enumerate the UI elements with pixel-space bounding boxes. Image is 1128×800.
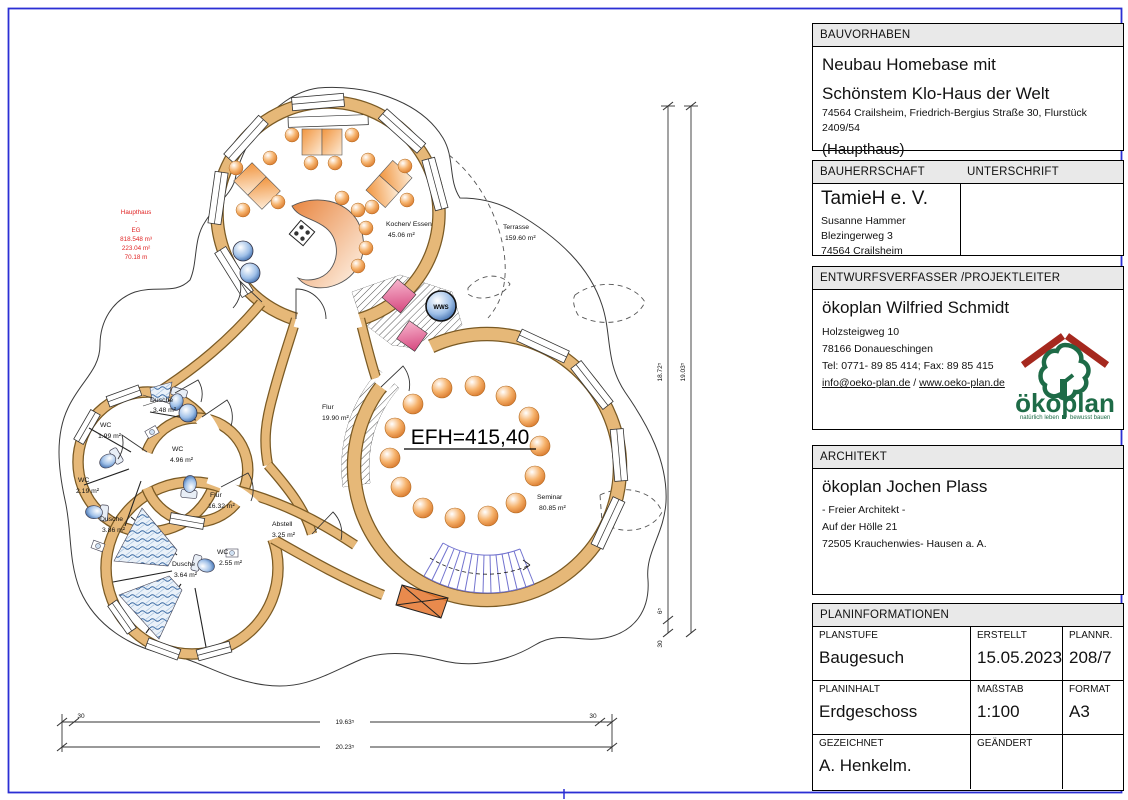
room-area: 3.64 m² — [174, 572, 198, 579]
architekt-header: ARCHITEKT — [813, 446, 1123, 469]
room-area: 45.06 m² — [388, 232, 416, 239]
room-area: 80.85 m² — [539, 505, 567, 512]
drawing-sheet: WWS — [0, 0, 1128, 800]
room-area: 4.96 m² — [170, 457, 194, 464]
dim-label-offset-left: 30 — [77, 713, 85, 720]
project-address: 74564 Crailsheim, Friedrich-Bergius Stra… — [822, 106, 1114, 136]
room-label: WC — [78, 477, 89, 484]
planinfo-cell-format: FORMAT A3 — [1063, 681, 1123, 735]
basin-icon — [240, 263, 260, 283]
oekoplan-logo-icon: ökoplan natürlich leben bewusst bauen — [1013, 322, 1117, 424]
designer-email-link[interactable]: info@oeko-plan.de — [822, 377, 910, 389]
room-label: Flur — [210, 492, 222, 499]
annotation-line: 223.04 m² — [122, 245, 150, 252]
planinfo-cell-gezeichnet: GEZEICHNET A. Henkelm. — [813, 735, 971, 789]
planinfo-grid: PLANSTUFE Baugesuch ERSTELLT 15.05.2023 … — [813, 627, 1123, 789]
dining-table — [302, 129, 342, 155]
room-label: Dusche — [150, 397, 173, 404]
stove-icon — [289, 220, 314, 245]
architect-role: - Freier Architekt - — [822, 502, 1114, 519]
room-area: 16.32 m² — [208, 503, 236, 510]
room-label: Terrasse — [503, 224, 529, 231]
dim-label-horizontal-outer: 20.23⁵ — [336, 744, 355, 751]
basin-icon — [179, 404, 197, 422]
planinformationen-header: PLANINFORMATIONEN — [813, 604, 1123, 627]
room-area: 1.99 m² — [98, 433, 122, 440]
room-label: WC — [100, 422, 111, 429]
client-city: 74564 Crailsheim — [821, 244, 952, 259]
architect-city: 72505 Krauchenwies- Hausen a. A. — [822, 536, 1114, 553]
architect-name: ökoplan Jochen Plass — [822, 477, 1114, 497]
window-icon — [106, 385, 142, 407]
titleblock-planinformationen: PLANINFORMATIONEN PLANSTUFE Baugesuch ER… — [812, 603, 1124, 791]
window-icon — [208, 171, 228, 224]
room-area: 3.48 m² — [153, 407, 177, 414]
annotation-line: EG — [131, 227, 140, 234]
room-label: Flur — [322, 404, 334, 411]
designer-name: ökoplan Wilfried Schmidt — [822, 298, 1114, 318]
planinfo-cell-plannr: PLANNR. 208/7 — [1063, 627, 1123, 681]
planinfo-cell-planinhalt: PLANINHALT Erdgeschoss — [813, 681, 971, 735]
designer-website-link[interactable]: www.oeko-plan.de — [919, 377, 1005, 389]
planinfo-cell-planstufe: PLANSTUFE Baugesuch — [813, 627, 971, 681]
logo-wordmark: ökoplan — [1015, 388, 1115, 418]
room-label: WC — [217, 549, 228, 556]
dim-label-vertical-outer: 19.03⁵ — [680, 362, 687, 381]
planinfo-cell-geaendert: GEÄNDERT — [971, 735, 1063, 789]
room-area: 3.25 m² — [272, 532, 296, 539]
titleblock-bauvorhaben: BAUVORHABEN Neubau Homebase mit Schönste… — [812, 23, 1124, 151]
terrace-boundary — [449, 155, 662, 530]
client-name: TamieH e. V. — [821, 188, 952, 210]
wws-label: WWS — [433, 305, 448, 311]
room-label: Abstell — [272, 521, 293, 528]
building-walls — [78, 102, 620, 654]
room-label: Dusche — [172, 561, 195, 568]
room-label: Seminar — [537, 494, 563, 501]
link-separator: / — [910, 377, 919, 389]
project-subtitle: (Haupthaus) — [822, 141, 1114, 158]
bauvorhaben-header: BAUVORHABEN — [813, 24, 1123, 47]
window-icon — [196, 641, 232, 660]
room-label: Dusche — [100, 516, 123, 523]
architect-street: Auf der Hölle 21 — [822, 519, 1114, 536]
room-label: WC — [172, 446, 183, 453]
plant-icon — [574, 284, 645, 322]
client-contact: Susanne Hammer — [821, 214, 952, 229]
titleblock-architekt: ARCHITEKT ökoplan Jochen Plass - Freier … — [812, 445, 1124, 595]
annotation-line: 818.548 m³ — [120, 236, 152, 243]
efh-label: EFH=415,40 — [411, 426, 530, 449]
window-icon — [224, 115, 268, 162]
dim-label-offset-right: 30 — [589, 713, 597, 720]
project-title-line2: Schönstem Klo-Haus der Welt — [822, 84, 1114, 104]
room-area: 2.19 m² — [76, 488, 100, 495]
seminar-chairs — [380, 376, 550, 528]
room-area: 3.86 m² — [102, 527, 126, 534]
planinfo-cell-erstellt: ERSTELLT 15.05.2023 — [971, 627, 1063, 681]
annotation-line: - — [135, 218, 137, 225]
dim-label-segment: 6⁵ — [657, 608, 664, 615]
titleblock-entwurfsverfasser: ENTWURFSVERFASSER /PROJEKTLEITER ökoplan… — [812, 266, 1124, 430]
basin-icon — [233, 241, 253, 261]
titleblock-bauherrschaft: BAUHERRSCHAFT TamieH e. V. Susanne Hamme… — [812, 160, 1124, 256]
bauherrschaft-header: BAUHERRSCHAFT — [813, 161, 960, 184]
planinfo-cell-massstab: MAßSTAB 1:100 — [971, 681, 1063, 735]
room-label: Kochen/ Essen — [386, 221, 432, 228]
window-icon — [378, 109, 425, 153]
window-icon — [422, 157, 448, 211]
room-area: 19.90 m² — [322, 415, 350, 422]
dim-label-horizontal-inner: 19.63⁵ — [336, 719, 355, 726]
kitchen-furniture — [229, 128, 414, 288]
plant-icon — [468, 276, 510, 298]
annotation-line: 70.18 m — [125, 254, 148, 261]
logo-tagline-left: natürlich leben — [1020, 415, 1059, 421]
door-icon — [118, 435, 147, 459]
room-area: 159.60 m² — [505, 235, 536, 242]
project-title-line1: Neubau Homebase mit — [822, 55, 1114, 75]
room-area: 2.55 m² — [219, 560, 243, 567]
annotation-line: Haupthaus — [121, 209, 151, 216]
client-street: Blezingerweg 3 — [821, 229, 952, 244]
oekoplan-logo: ökoplan natürlich leben bewusst bauen — [1013, 322, 1117, 424]
dim-label-segment: 30 — [657, 640, 664, 648]
red-annotation: Haupthaus - EG 818.548 m³ 223.04 m² 70.1… — [120, 209, 152, 261]
logo-tagline-right: bewusst bauen — [1070, 415, 1110, 421]
sink-icon — [91, 540, 105, 552]
window-icon — [145, 638, 181, 660]
entwurfsverfasser-header: ENTWURFSVERFASSER /PROJEKTLEITER — [813, 267, 1123, 290]
toilet-icon — [96, 447, 123, 472]
unterschrift-header: UNTERSCHRIFT — [960, 161, 1123, 184]
planinfo-cell-empty — [1063, 735, 1123, 789]
window-icon — [571, 361, 613, 410]
signature-area[interactable] — [960, 184, 1123, 254]
dim-label-vertical-inner: 18.72⁵ — [657, 362, 664, 381]
